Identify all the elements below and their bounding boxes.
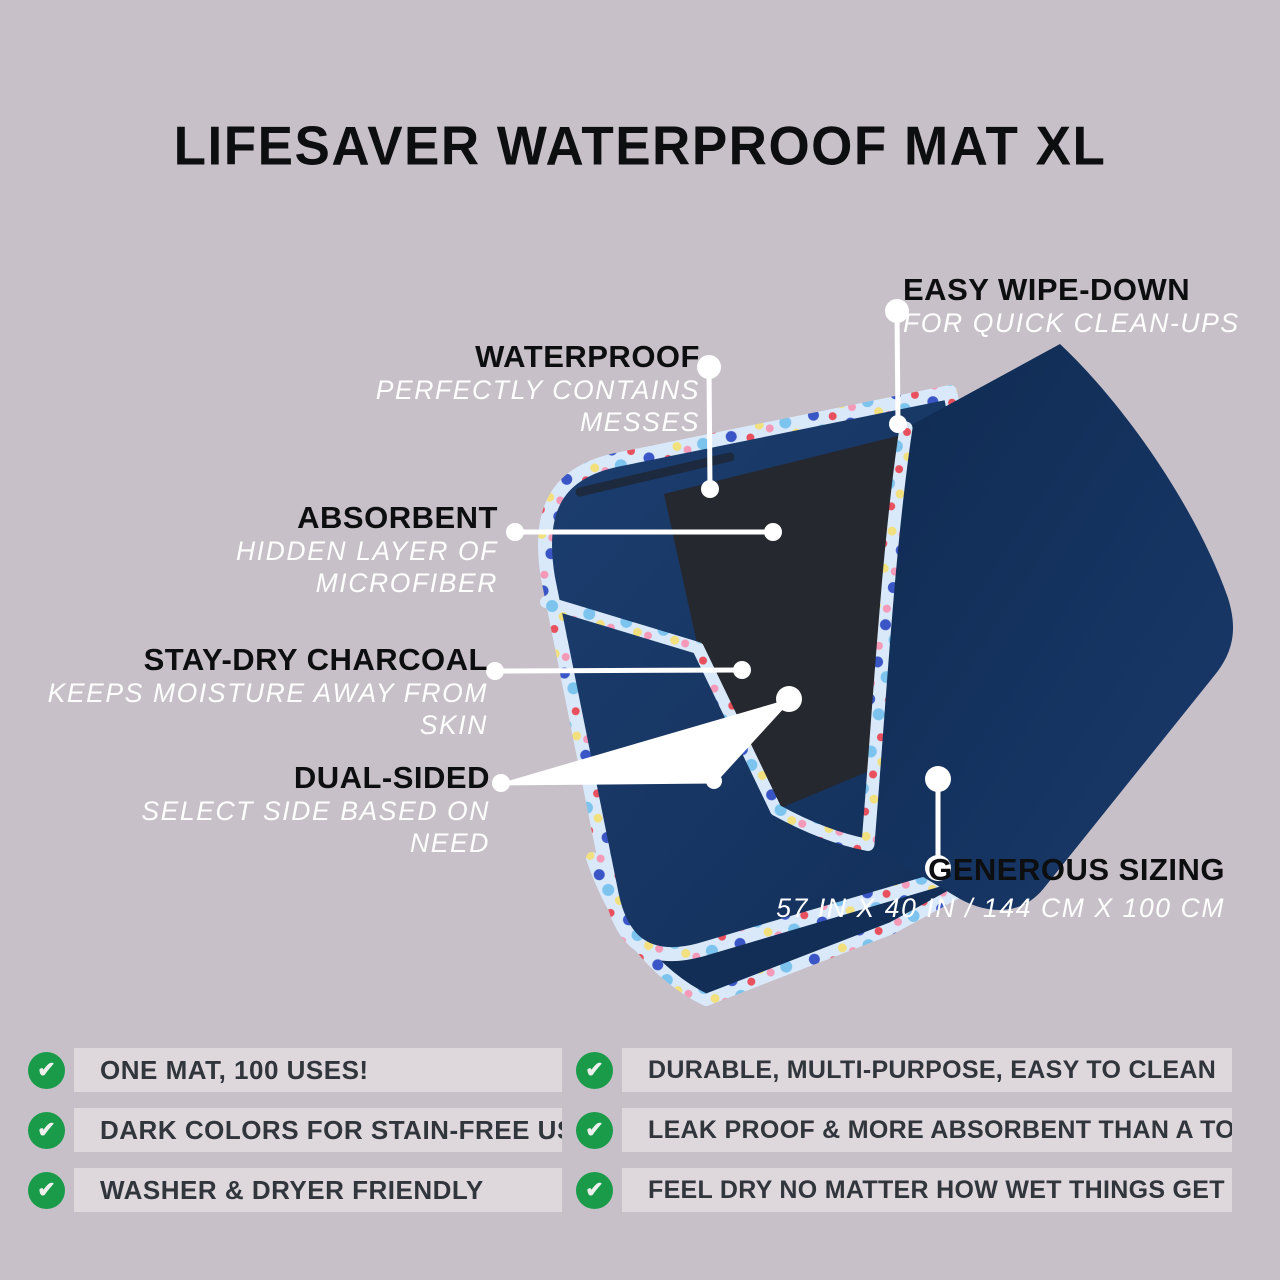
check-icon: ✔ [28, 1112, 65, 1149]
check-icon: ✔ [576, 1172, 613, 1209]
callout-subheading: FOR QUICK CLEAN-UPS [903, 308, 1248, 339]
mat-folded-half [868, 344, 1233, 910]
connector-waterproof [697, 355, 721, 498]
callout-stay-dry-charcoal: STAY-DRY CHARCOAL KEEPS MOISTURE AWAY FR… [36, 643, 488, 741]
callout-subheading: KEEPS MOISTURE AWAY FROM SKIN [36, 678, 488, 741]
callout-subheading: PERFECTLY CONTAINS MESSES [250, 375, 700, 438]
feature-text: WASHER & DRYER FRIENDLY [74, 1168, 562, 1212]
feature-row: ✔ DURABLE, MULTI-PURPOSE, EASY TO CLEAN [576, 1048, 1232, 1092]
callout-heading: ABSORBENT [100, 501, 498, 534]
callout-heading: WATERPROOF [250, 340, 700, 373]
mat-fold-edge-trim [868, 428, 906, 844]
feature-text: FEEL DRY NO MATTER HOW WET THINGS GET [622, 1168, 1232, 1212]
callout-dual-sided: DUAL-SIDED SELECT SIDE BASED ON NEED [88, 761, 490, 859]
callout-heading: GENEROUS SIZING [622, 853, 1225, 886]
callout-heading: EASY WIPE-DOWN [903, 273, 1248, 306]
callout-generous-sizing: GENEROUS SIZING 57 IN X 40 IN / 144 CM X… [622, 853, 1225, 925]
feature-row: ✔ DARK COLORS FOR STAIN-FREE USE [28, 1108, 562, 1152]
callout-absorbent: ABSORBENT HIDDEN LAYER OF MICROFIBER [100, 501, 498, 599]
feature-text: LEAK PROOF & MORE ABSORBENT THAN A TOWEL [622, 1108, 1232, 1152]
callout-subheading: 57 IN X 40 IN / 144 CM X 100 CM [622, 893, 1225, 924]
feature-row: ✔ LEAK PROOF & MORE ABSORBENT THAN A TOW… [576, 1108, 1232, 1152]
mat-charcoal-layer [664, 426, 948, 810]
mat-top-edge-shadow [580, 457, 730, 492]
check-icon: ✔ [576, 1052, 613, 1089]
check-icon: ✔ [28, 1172, 65, 1209]
feature-row: ✔ ONE MAT, 100 USES! [28, 1048, 562, 1092]
callout-subheading: HIDDEN LAYER OF MICROFIBER [100, 536, 498, 599]
callout-waterproof: WATERPROOF PERFECTLY CONTAINS MESSES [250, 340, 700, 438]
mat-loose-trim-strip [546, 602, 776, 810]
callout-easy-wipe-down: EASY WIPE-DOWN FOR QUICK CLEAN-UPS [903, 273, 1248, 340]
callout-heading: STAY-DRY CHARCOAL [36, 643, 488, 676]
page-title: LIFESAVER WATERPROOF MAT XL [0, 115, 1280, 178]
check-icon: ✔ [576, 1112, 613, 1149]
connector-stay-dry-charcoal [486, 661, 751, 680]
check-icon: ✔ [28, 1052, 65, 1089]
connector-absorbent [506, 523, 782, 541]
feature-text: DARK COLORS FOR STAIN-FREE USE [74, 1108, 562, 1152]
connector-dual-sided [492, 686, 802, 792]
callout-subheading: SELECT SIDE BASED ON NEED [88, 796, 490, 859]
feature-row: ✔ WASHER & DRYER FRIENDLY [28, 1168, 562, 1212]
feature-text: DURABLE, MULTI-PURPOSE, EASY TO CLEAN [622, 1048, 1232, 1092]
feature-row: ✔ FEEL DRY NO MATTER HOW WET THINGS GET [576, 1168, 1232, 1212]
feature-text: ONE MAT, 100 USES! [74, 1048, 562, 1092]
callout-heading: DUAL-SIDED [88, 761, 490, 794]
mat-fold-bottom-trim [776, 810, 868, 845]
